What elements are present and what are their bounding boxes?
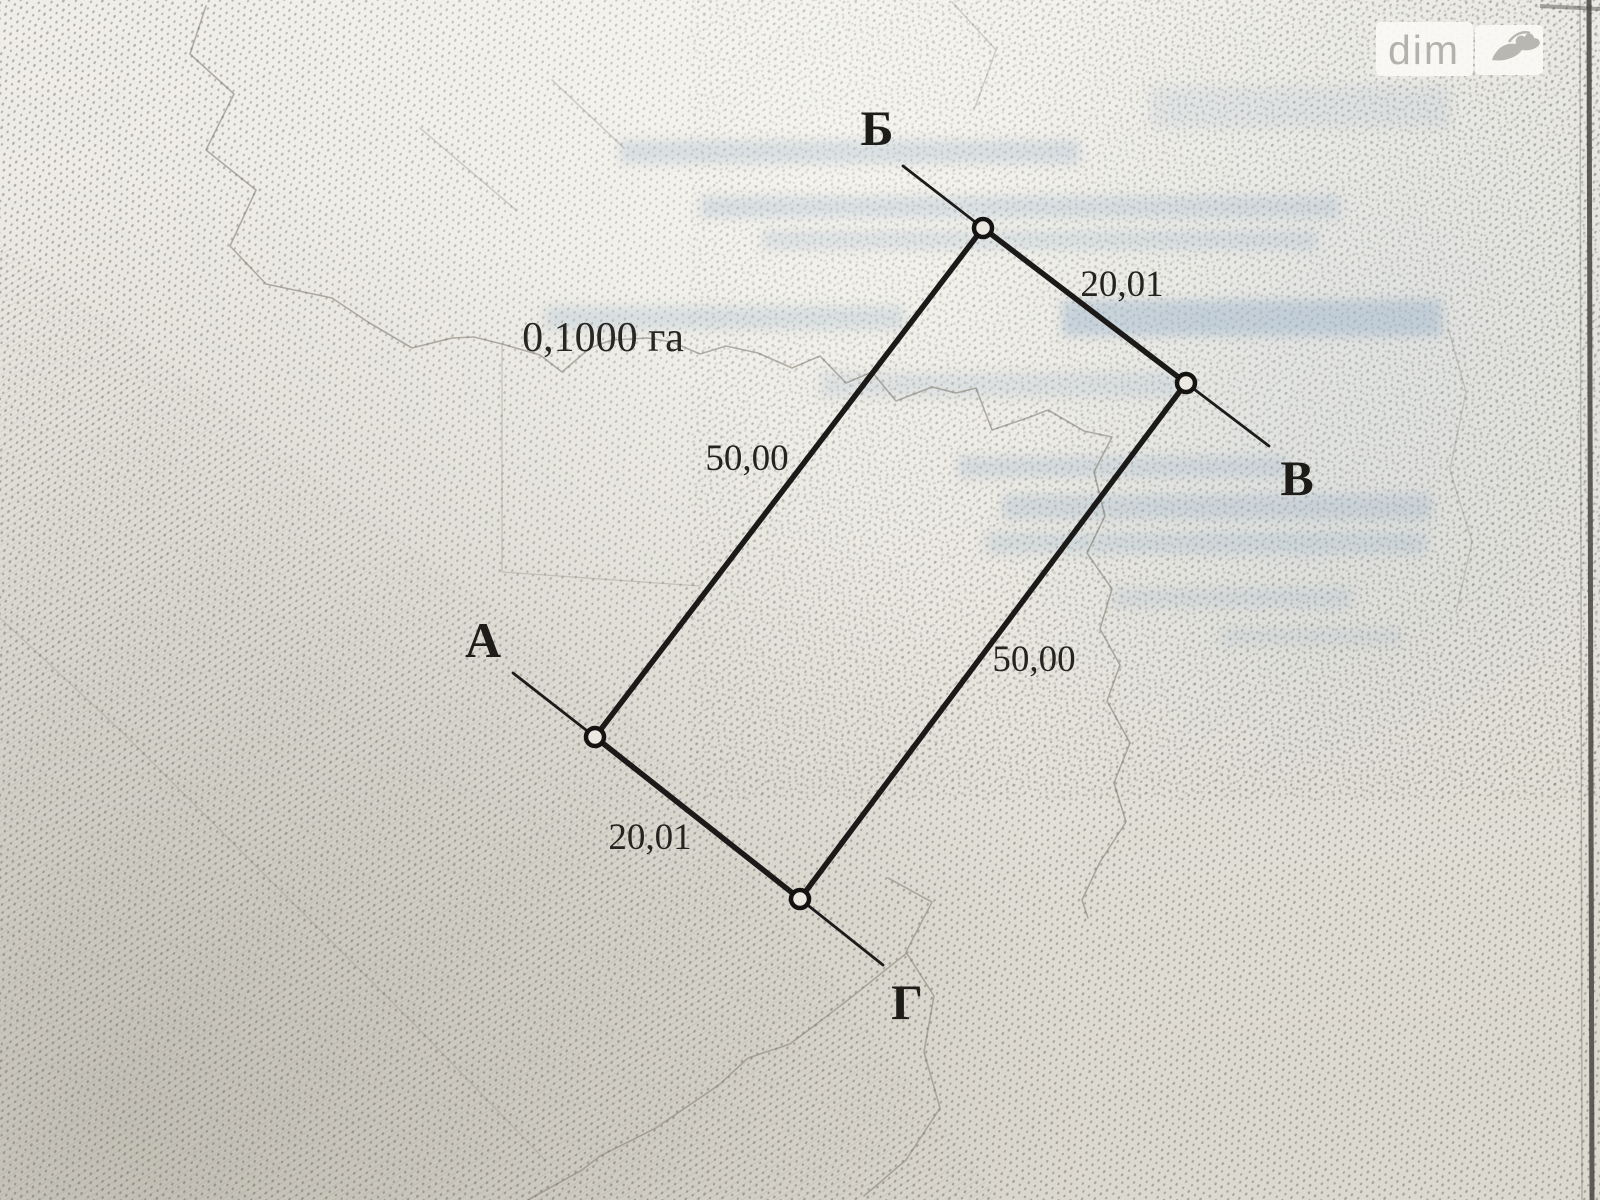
watermark-brand-text: dim <box>1388 27 1460 73</box>
vertex-marker-b <box>974 219 992 237</box>
page-border-line <box>1589 0 1592 1200</box>
scanned-cadastral-plan: Б В А Г 20,01 50,00 50,00 20,01 0,1000 г… <box>0 0 1600 1200</box>
dimension-label-bottom-left: 20,01 <box>608 817 691 858</box>
corner-label-b: Б <box>860 100 893 156</box>
area-label: 0,1000 га <box>522 315 684 361</box>
corner-label-g: Г <box>891 974 923 1030</box>
vertex-marker-g <box>791 890 809 908</box>
vertex-marker-v <box>1177 374 1195 392</box>
dimension-label-right: 50,00 <box>992 639 1075 680</box>
dimension-label-top-right: 20,01 <box>1080 264 1163 305</box>
vertex-marker-a <box>586 728 604 746</box>
corner-label-v: В <box>1280 450 1313 506</box>
watermark: dim <box>1376 22 1543 76</box>
corner-label-a: А <box>465 612 501 668</box>
dimension-label-left: 50,00 <box>705 438 788 479</box>
paper-background <box>0 0 1600 1200</box>
plan-canvas: Б В А Г 20,01 50,00 50,00 20,01 0,1000 г… <box>0 0 1600 1200</box>
